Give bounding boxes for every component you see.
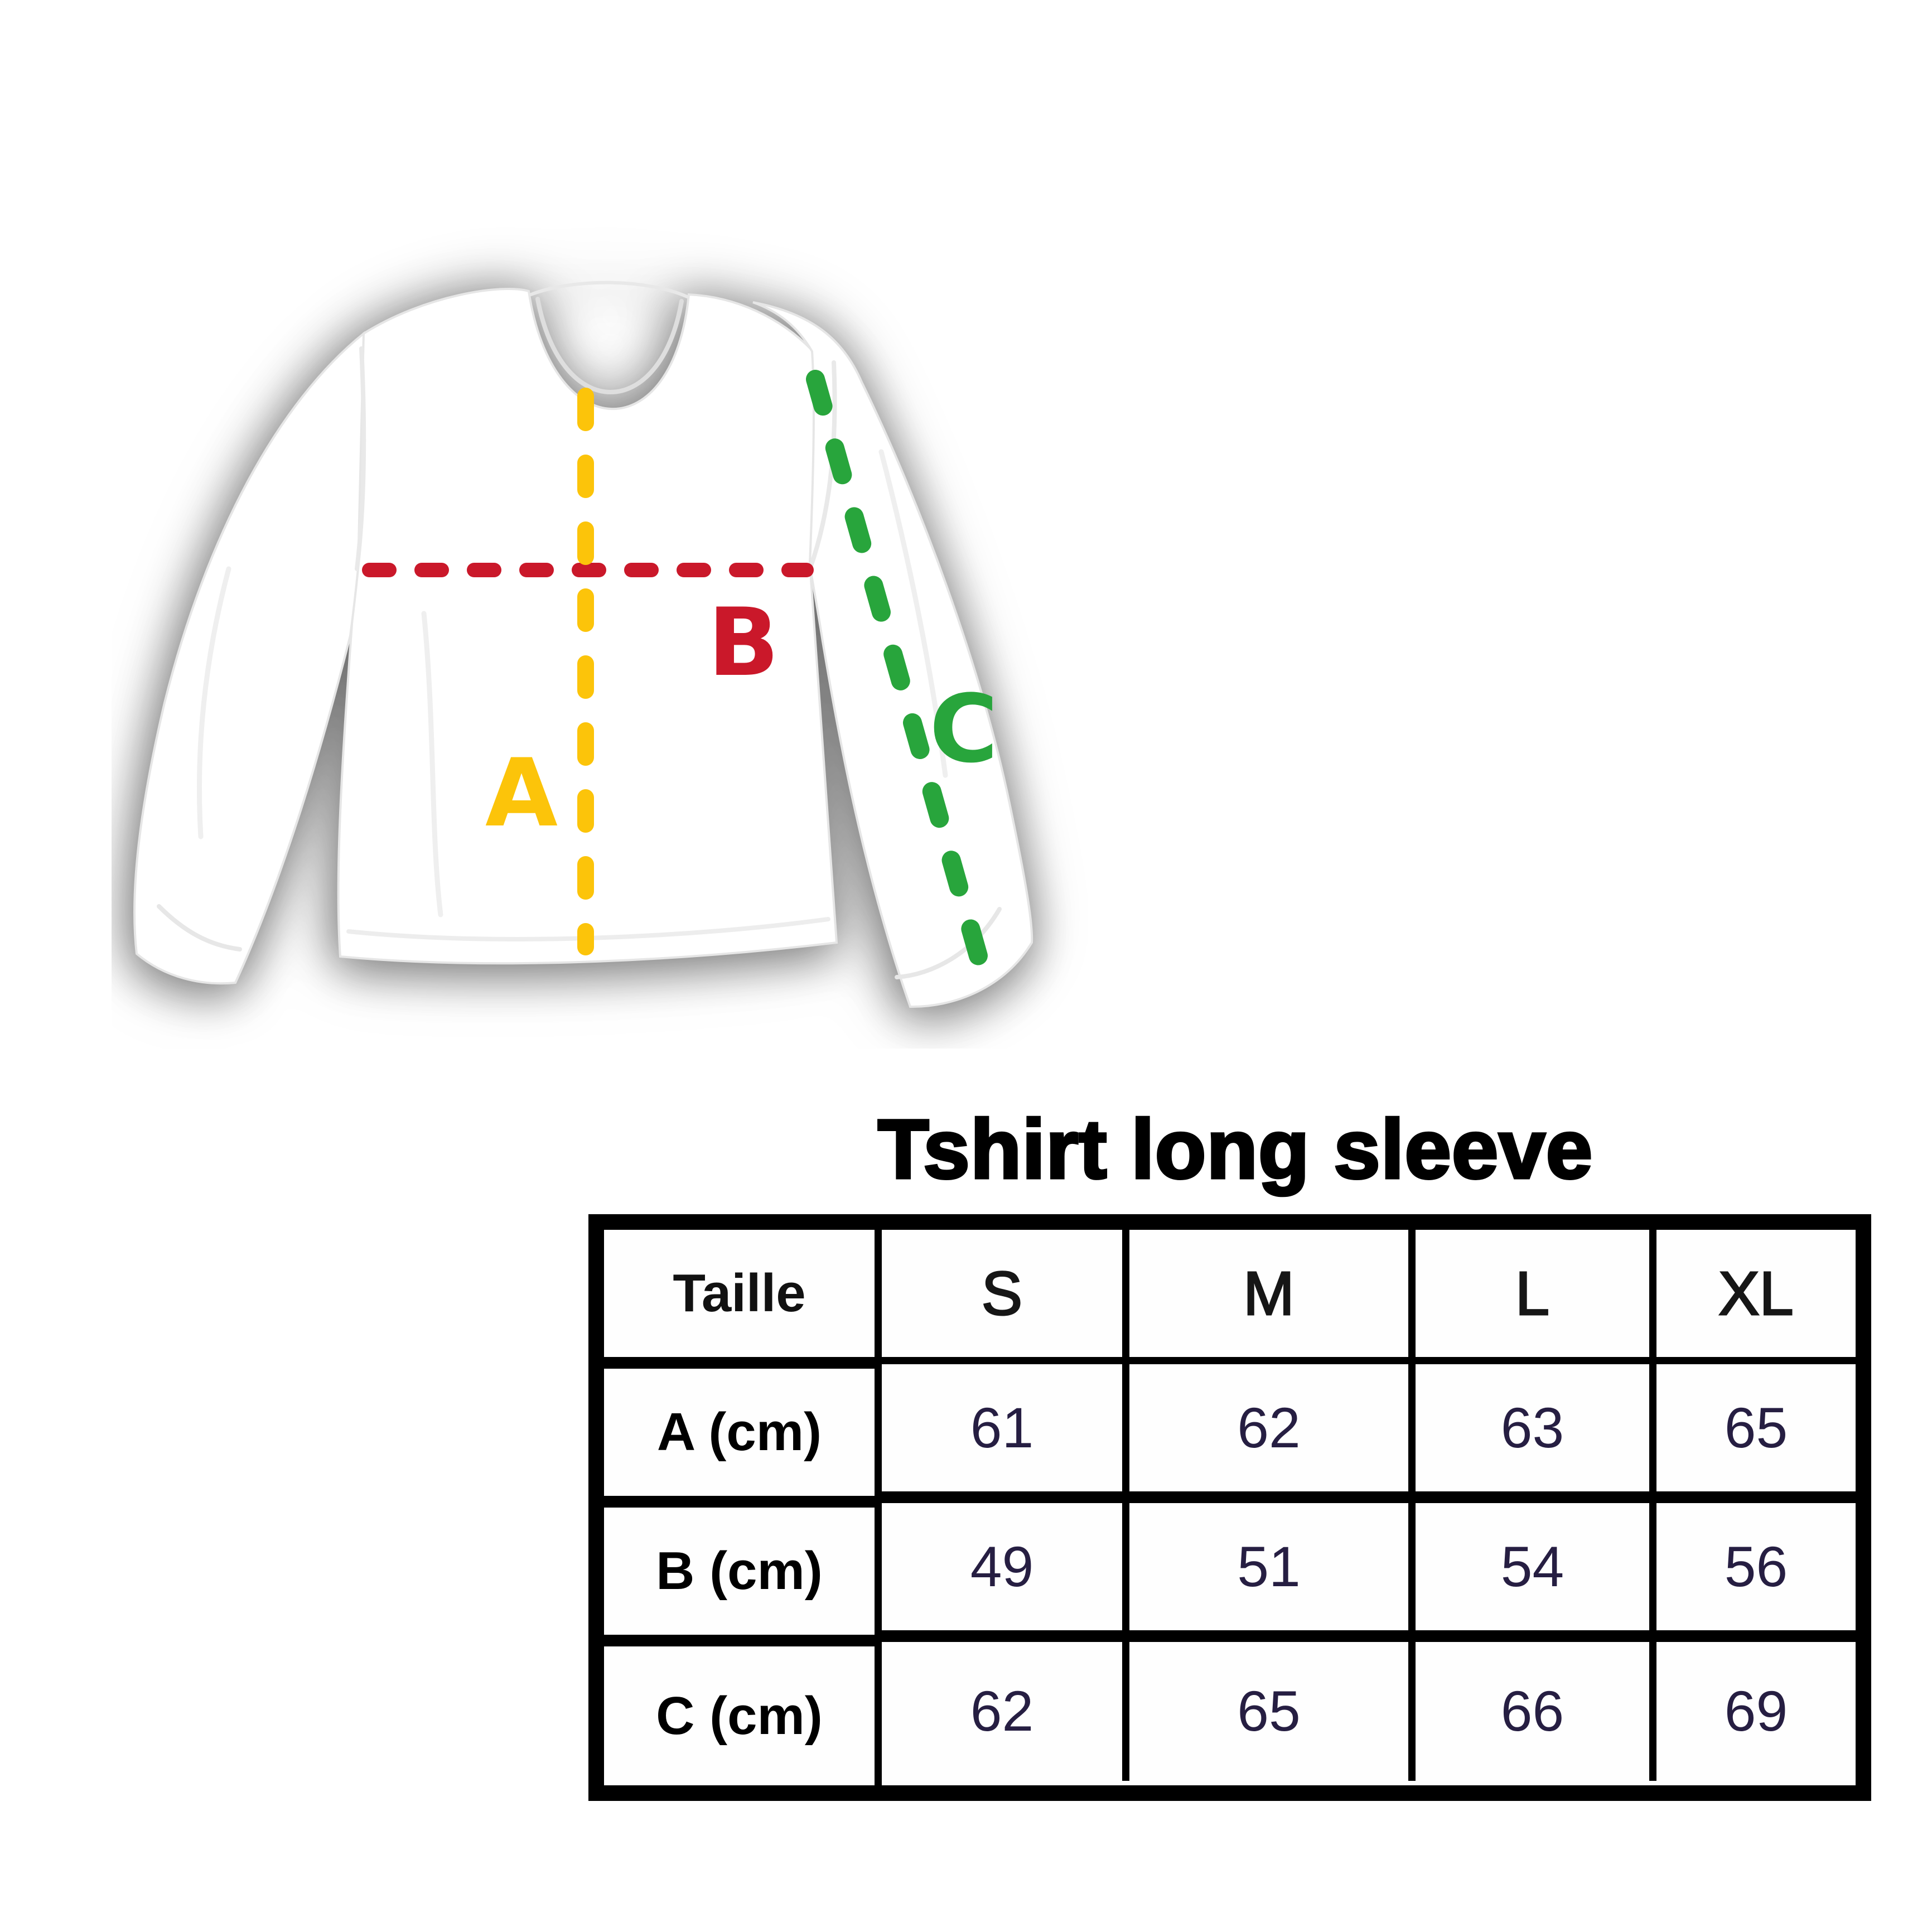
cell-a-l: 63 bbox=[1416, 1364, 1656, 1503]
cell-b-m: 51 bbox=[1129, 1503, 1416, 1642]
cell-c-m: 65 bbox=[1129, 1642, 1416, 1781]
shirt-illustration: A B C bbox=[112, 212, 1088, 1049]
shirt-diagram: A B C bbox=[112, 212, 1088, 1049]
header-cell-l: L bbox=[1416, 1230, 1656, 1369]
header-cell-xl: XL bbox=[1656, 1230, 1856, 1369]
cell-c-s: 62 bbox=[882, 1642, 1129, 1781]
cell-c-xl: 69 bbox=[1656, 1642, 1856, 1781]
collar-back-seam bbox=[531, 283, 687, 297]
row-label-a: A (cm) bbox=[604, 1369, 882, 1508]
header-cell-taille: Taille bbox=[604, 1230, 882, 1369]
cell-b-l: 54 bbox=[1416, 1503, 1656, 1642]
size-table: Taille S M L XL A (cm) 61 62 63 65 B (cm… bbox=[588, 1214, 1871, 1801]
cell-a-xl: 65 bbox=[1656, 1364, 1856, 1503]
page-title: Tshirt long sleeve bbox=[600, 1107, 1871, 1191]
size-chart-page: A B C Tshirt long sleeve Taille S M L XL… bbox=[0, 0, 1932, 1932]
row-label-b: B (cm) bbox=[604, 1508, 882, 1646]
cell-b-s: 49 bbox=[882, 1503, 1129, 1642]
measurement-label-c: C bbox=[929, 674, 998, 784]
cell-c-l: 66 bbox=[1416, 1642, 1656, 1781]
header-cell-s: S bbox=[882, 1230, 1129, 1369]
header-cell-m: M bbox=[1129, 1230, 1416, 1369]
measurement-label-a: A bbox=[485, 738, 558, 848]
measurement-label-b: B bbox=[708, 588, 779, 697]
cell-b-xl: 56 bbox=[1656, 1503, 1856, 1642]
row-label-c: C (cm) bbox=[604, 1646, 882, 1785]
shirt-left-sleeve bbox=[134, 334, 364, 983]
cell-a-s: 61 bbox=[882, 1364, 1129, 1503]
cell-a-m: 62 bbox=[1129, 1364, 1416, 1503]
